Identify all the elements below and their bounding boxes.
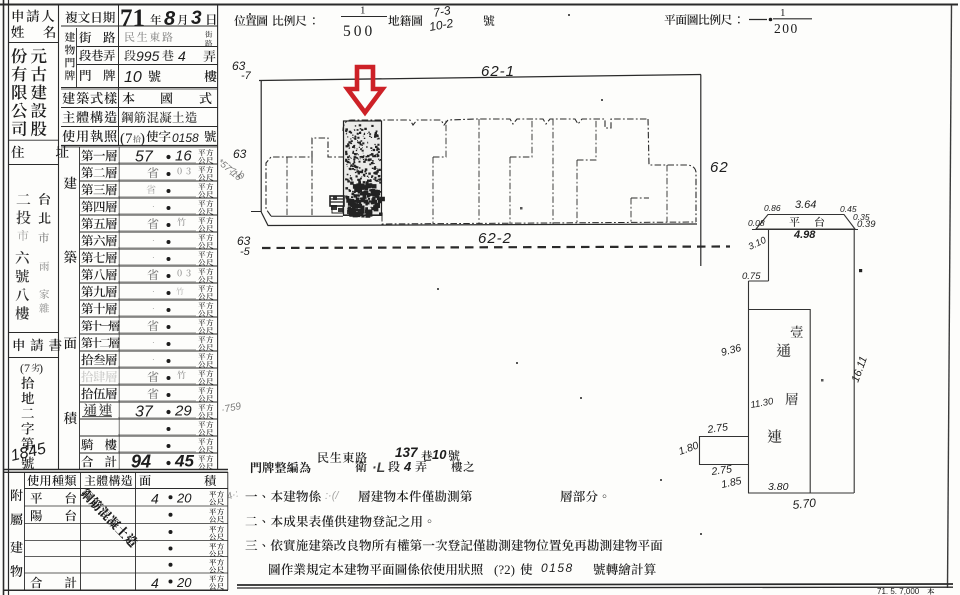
svg-text:37: 37 <box>135 404 154 421</box>
svg-text:20: 20 <box>176 575 192 590</box>
svg-text:9.36: 9.36 <box>720 342 743 359</box>
svg-text:1: 1 <box>780 7 786 19</box>
svg-text:·: · <box>152 304 155 313</box>
svg-text:5.70: 5.70 <box>792 496 817 512</box>
svg-text:10-2: 10-2 <box>428 16 454 34</box>
svg-text:·L: ·L <box>372 459 385 475</box>
svg-text:0.75: 0.75 <box>742 271 761 282</box>
svg-text:71: 71 <box>120 5 145 32</box>
svg-text:): ) <box>140 131 145 147</box>
svg-text:200: 200 <box>774 21 799 36</box>
svg-text:·: · <box>152 338 155 347</box>
svg-text:11.30: 11.30 <box>750 396 775 411</box>
svg-text:-7: -7 <box>241 70 252 82</box>
svg-text:20: 20 <box>176 491 192 506</box>
svg-text:-5: -5 <box>240 246 251 258</box>
svg-text:62-2: 62-2 <box>478 230 512 247</box>
svg-text:·: · <box>152 253 155 262</box>
svg-text:(?2): (?2) <box>494 562 515 577</box>
svg-text:4: 4 <box>151 575 159 591</box>
svg-text:1.85: 1.85 <box>720 475 743 491</box>
svg-text:45: 45 <box>174 452 194 471</box>
svg-text:·: · <box>152 202 155 211</box>
svg-text:10: 10 <box>124 69 142 86</box>
svg-text:0.39: 0.39 <box>857 219 876 230</box>
svg-text:1: 1 <box>360 5 366 17</box>
svg-text:500: 500 <box>343 23 375 40</box>
svg-text:0.86: 0.86 <box>764 203 781 213</box>
svg-text:3.64: 3.64 <box>795 199 816 211</box>
svg-text:): ) <box>39 361 43 375</box>
svg-text:62: 62 <box>710 159 729 176</box>
svg-text:0158: 0158 <box>541 561 574 575</box>
svg-text:·: · <box>152 236 155 245</box>
svg-text:137: 137 <box>395 445 419 460</box>
svg-text:3.80: 3.80 <box>768 481 789 493</box>
svg-text:4: 4 <box>403 459 412 474</box>
svg-text:·759: ·759 <box>220 401 242 416</box>
svg-text:71. 5. 7,000: 71. 5. 7,000 <box>877 587 920 595</box>
svg-text:2.75: 2.75 <box>706 421 729 436</box>
svg-text:1.80: 1.80 <box>677 439 700 457</box>
svg-text:3.10: 3.10 <box>747 235 769 253</box>
svg-text:16.11: 16.11 <box>850 355 870 384</box>
svg-text::·(/: :·(/ <box>325 490 339 502</box>
svg-text:·: · <box>152 185 155 194</box>
svg-text:2.75: 2.75 <box>710 463 733 478</box>
svg-text:4.98: 4.98 <box>793 229 816 241</box>
svg-text:63: 63 <box>233 147 247 161</box>
svg-text:·: · <box>152 355 155 364</box>
svg-text:10: 10 <box>432 447 447 462</box>
svg-text:995: 995 <box>136 48 160 64</box>
svg-text:4: 4 <box>151 491 159 507</box>
svg-text:8: 8 <box>164 8 176 30</box>
svg-text:(7: (7 <box>20 361 30 375</box>
svg-text:62-1: 62-1 <box>481 63 515 80</box>
svg-text:0.08: 0.08 <box>748 218 765 228</box>
svg-text:16: 16 <box>175 148 192 165</box>
svg-text:0158: 0158 <box>172 131 199 145</box>
svg-text:4: 4 <box>178 48 186 64</box>
svg-text:1845: 1845 <box>9 440 48 465</box>
svg-text:(7: (7 <box>120 131 133 147</box>
svg-text:29: 29 <box>174 403 192 420</box>
svg-text:·: · <box>152 287 155 296</box>
svg-text:7·b: 7·b <box>227 166 246 183</box>
